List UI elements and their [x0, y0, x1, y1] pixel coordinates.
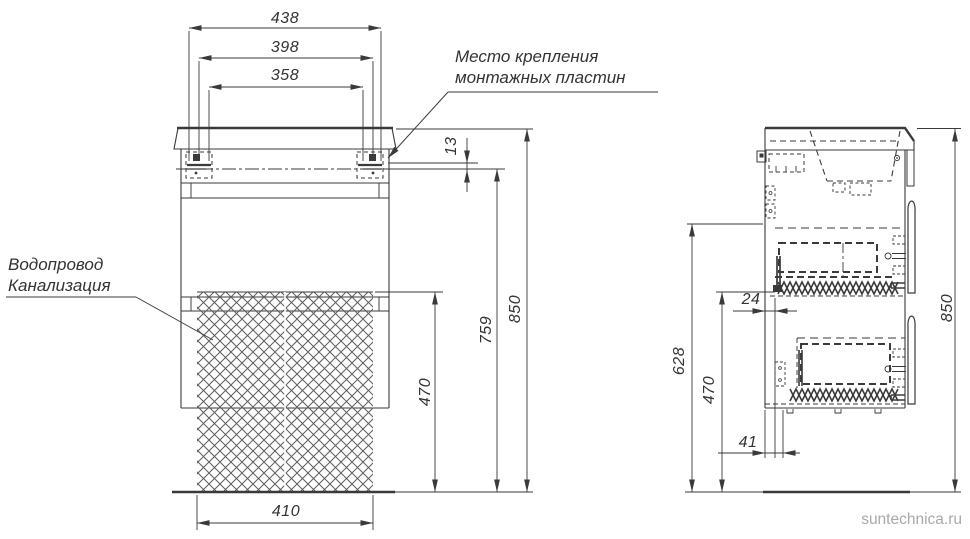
side-upper-drawer [770, 228, 906, 296]
dim-side-height-total: 850 [939, 294, 957, 322]
dim-front-width-mid: 398 [271, 39, 299, 57]
dim-front-width-bottom: 410 [272, 503, 300, 521]
dim-side-back-offset: 24 [742, 291, 761, 309]
dim-front-plate-offset: 13 [443, 137, 461, 156]
side-dimensions [687, 129, 961, 493]
side-drawer-fronts [908, 201, 915, 404]
dim-front-height-clearance: 470 [417, 378, 435, 406]
dim-front-height-total: 850 [507, 295, 525, 323]
note-mounting-line2: монтажных пластин [455, 68, 626, 88]
note-mounting-line1: Место крепления [455, 47, 598, 67]
plumbing-hatch-area [197, 292, 373, 492]
side-mounting-plate [757, 151, 804, 218]
side-lower-drawer [765, 338, 906, 404]
note-plumbing-line1: Водопровод [8, 255, 103, 275]
dim-side-height-clearance: 470 [701, 376, 719, 404]
watermark-text: suntechnica.ru [861, 511, 962, 529]
dim-front-height-plate: 759 [478, 316, 496, 344]
side-sink-bowl [770, 131, 900, 195]
dim-side-height-upper: 628 [671, 347, 689, 375]
side-outline [765, 128, 914, 413]
dim-side-bottom-offset: 41 [739, 434, 758, 452]
dim-front-width-outer: 438 [271, 10, 299, 28]
dim-front-width-inner: 358 [271, 67, 299, 85]
technical-drawing-page: 438 398 358 13 470 759 850 410 Место кре… [0, 0, 970, 539]
front-mounting-plate-right [357, 152, 383, 178]
note-plumbing-line2: Канализация [8, 276, 111, 296]
side-view-drawing [685, 128, 961, 492]
